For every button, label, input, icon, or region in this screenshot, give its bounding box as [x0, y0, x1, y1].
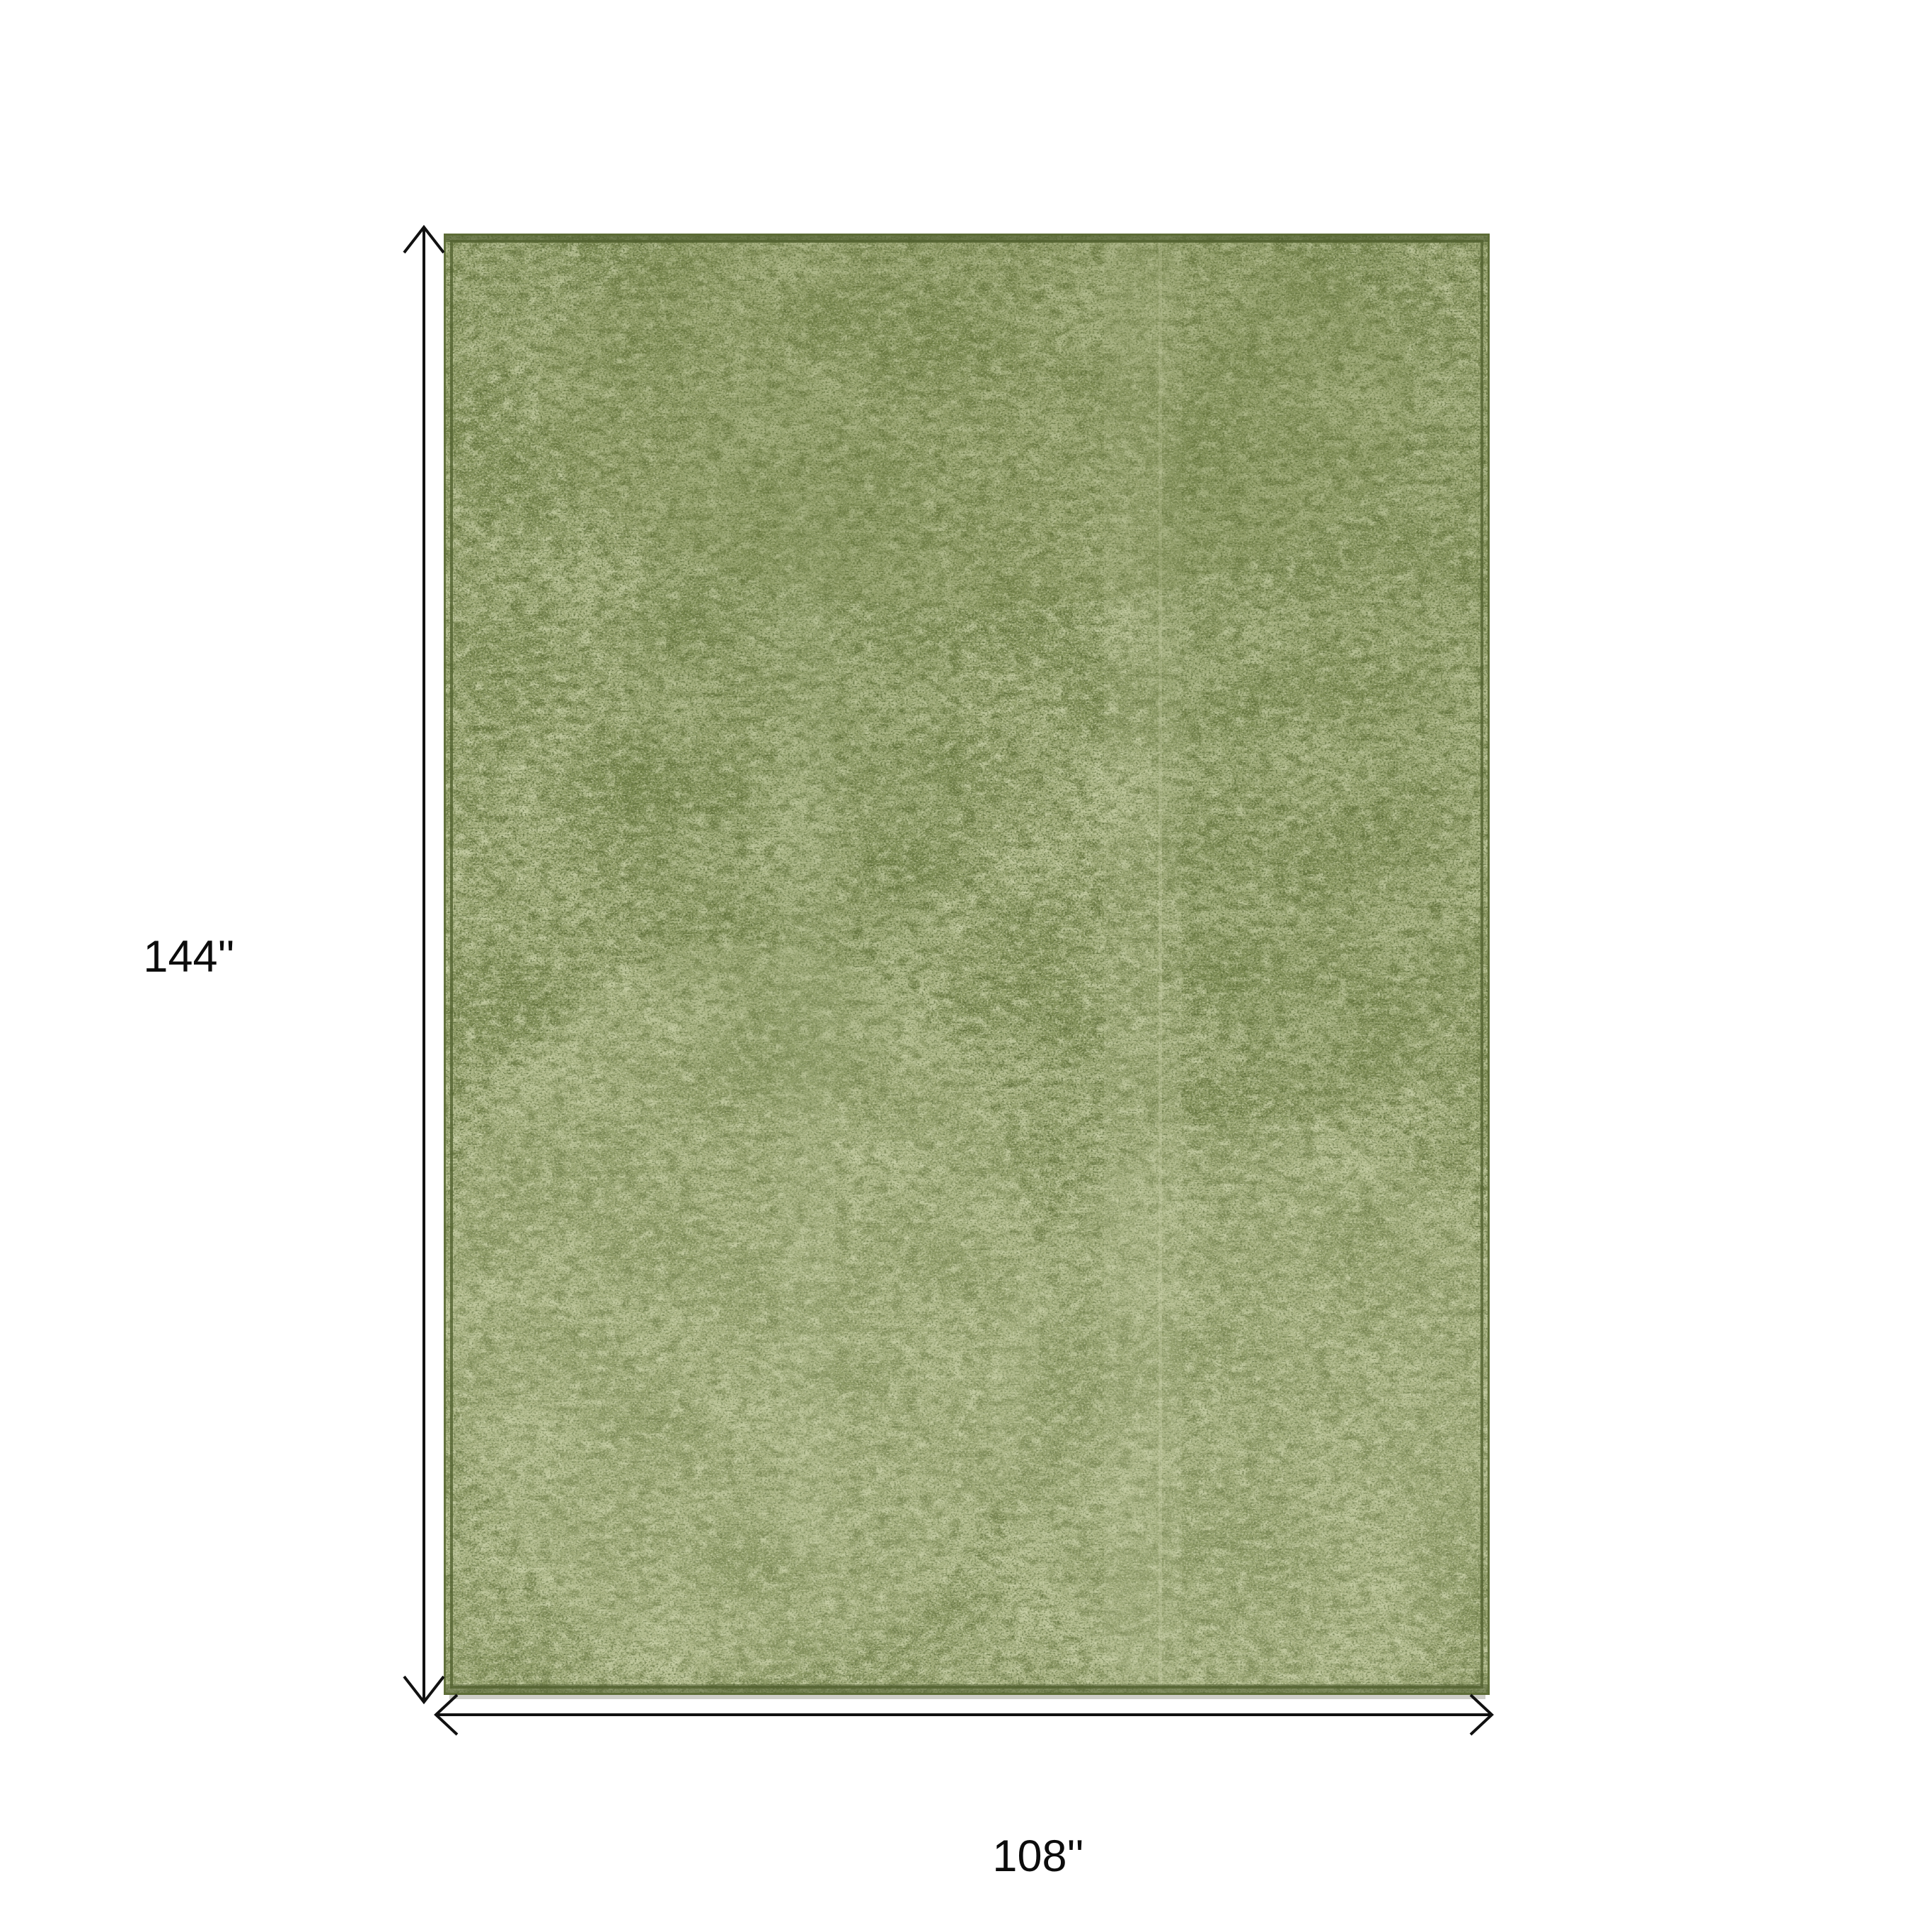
svg-text:144'': 144''	[143, 932, 234, 982]
svg-text:108'': 108''	[992, 1832, 1083, 1881]
